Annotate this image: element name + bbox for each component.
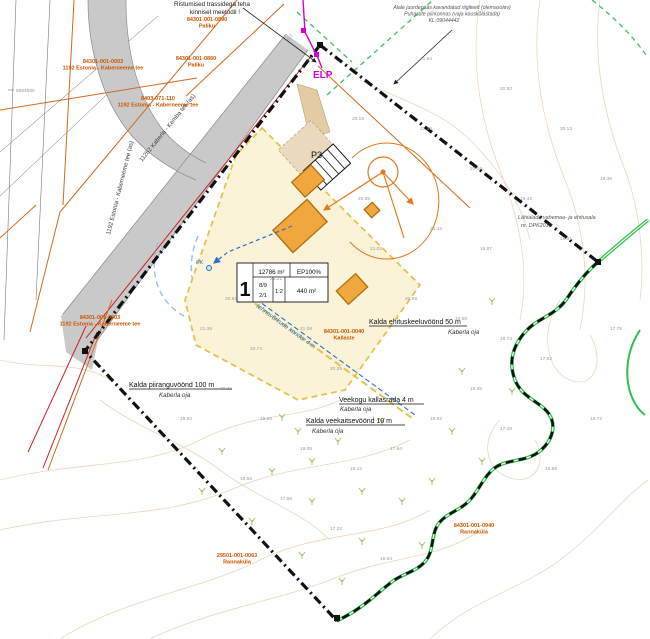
elevation-label: 20.13 xyxy=(560,126,572,132)
elevation-label: 17.75 xyxy=(610,326,622,332)
cadastral-name: 1192 Estonia - Kaberneeme tee xyxy=(63,66,144,72)
elp-label: ELP xyxy=(313,70,333,81)
elevation-label: 18.02 xyxy=(430,416,442,422)
cadastral-code: 29501-001-0063 xyxy=(217,553,257,559)
plot-table: 1 12786 m² EP100% 8/9 2/1 1:2 440 m² xyxy=(237,263,328,302)
cadastral-code: 84301-001-0860 xyxy=(176,56,216,62)
plot-intensity: EP100% xyxy=(297,269,322,276)
cadastral-name: Paliku xyxy=(188,63,204,69)
access-note-line3: KL:09044442 xyxy=(429,18,460,24)
cadastral-name: 1192 Estonia - Kaberneeme tee xyxy=(60,322,141,328)
zone-piirang-stream: Kaberla oja xyxy=(159,392,191,399)
elevation-label: 19.87 xyxy=(480,246,492,252)
elevation-label: 17.22 xyxy=(330,526,342,532)
cadastral-name: 1192 Estonia - Kaberneeme tee xyxy=(118,103,199,109)
elevation-label: 21.21 xyxy=(270,276,282,282)
cadastral-code: 84301-001-0003 xyxy=(83,59,123,65)
cadastral-code: 84301-001-0940 xyxy=(454,523,494,529)
elevation-label: 18.91 xyxy=(560,236,572,242)
zone-keeluvoond-stream: Kaberla oja xyxy=(448,329,480,336)
elevation-label: 20.35 xyxy=(330,366,342,372)
access-note-line1: Alale juurdepääs kavandatud riigiteelt (… xyxy=(392,5,511,11)
zone-piirang-label: Kalda piiranguvöönd 100 m xyxy=(129,382,214,389)
elevation-label: 19.42 xyxy=(520,196,532,202)
elevation-label: 17.48 xyxy=(500,426,512,432)
elevation-label: 16.72 xyxy=(590,416,602,422)
zone-kallasrada-label: Veekogu kallasrada 4 m xyxy=(339,397,414,404)
zone-kallasrada-stream: Kaberla oja xyxy=(340,406,372,413)
elevation-label: 16.89 xyxy=(545,466,557,472)
grid-coordinate-label: 6584500 xyxy=(16,88,35,94)
zone-veekaitse-stream: Kaberla oja xyxy=(312,428,344,435)
plot-ratio: 1:2 xyxy=(275,289,283,295)
crossing-note-line2: kinnisel meetodil ! xyxy=(190,9,240,16)
elevation-label: 21.35 xyxy=(420,126,432,132)
plot-building-area: 440 m² xyxy=(297,288,316,295)
elevation-label: 18.74 xyxy=(500,336,512,342)
elevation-label: 17.85 xyxy=(280,496,292,502)
elevation-label: 18.35 xyxy=(470,386,482,392)
elevation-label: 21.64 xyxy=(420,56,432,62)
cadastral-code: 84301-001-0003 xyxy=(80,315,120,321)
cadastral-name: Rannaküla xyxy=(460,530,489,536)
cadastral-name: Paliku xyxy=(199,24,215,30)
elevation-label: 20.06 xyxy=(470,166,482,172)
elevation-label: 17.64 xyxy=(390,446,402,452)
elevation-label: 20.21 xyxy=(220,386,232,392)
elevation-label: 20.18 xyxy=(352,116,364,122)
cadastral-code: 84301-001-0040 xyxy=(324,329,364,335)
p3-label: P3 xyxy=(311,150,322,160)
cadastral-code: 8403-071-110 xyxy=(141,96,175,102)
pk-label: PK xyxy=(196,260,204,266)
elevation-label: 17.92 xyxy=(540,356,552,362)
east-note-line1: Lähialade vahemaa- ja ehitusala xyxy=(518,215,596,221)
plot-area: 12786 m² xyxy=(258,269,284,276)
elevation-label: 19.66 xyxy=(260,416,272,422)
elevation-label: 18.56 xyxy=(240,476,252,482)
elevation-label: 20.66 xyxy=(405,296,417,302)
crossing-note-line1: Ristumised trassidega teha xyxy=(174,1,250,8)
elevation-label: 16.94 xyxy=(380,556,392,562)
zone-keeluvoond-label: Kalda ehituskeeluvöönd 50 m xyxy=(369,319,461,326)
site-plan-map: 1 12786 m² EP100% 8/9 2/1 1:2 440 m² Kal… xyxy=(0,0,650,639)
elevation-label: 21.36 xyxy=(200,326,212,332)
plan-canvas: 1 12786 m² EP100% 8/9 2/1 1:2 440 m² Kal… xyxy=(0,0,650,639)
east-note-line2: nr. DPK2010 xyxy=(521,223,552,229)
cadastral-code: 84301-001-0890 xyxy=(187,17,227,23)
elevation-label: 20.44 xyxy=(430,226,442,232)
elevation-label: 18.12 xyxy=(350,466,362,472)
cadastral-name: Kallaste xyxy=(333,336,354,342)
plot-units: 2/1 xyxy=(259,293,267,299)
plot-number: 1 xyxy=(239,279,250,301)
cadastral-name: Rannaküla xyxy=(223,560,252,566)
elevation-label: 19.92 xyxy=(180,416,192,422)
plot-storeys: 8/9 xyxy=(259,283,267,289)
access-note-line2: Puhastite piirkonnas (vaja kooskõlastada… xyxy=(404,12,500,18)
elevation-label: 19.35 xyxy=(600,176,612,182)
zone-veekaitse-label: Kalda veekaitsevöönd 10 m xyxy=(306,418,392,425)
magenta-utility xyxy=(301,0,322,68)
elevation-label: 20.92 xyxy=(500,86,512,92)
elevation-label: 21.02 xyxy=(370,246,382,252)
elevation-label: 21.08 xyxy=(300,326,312,332)
road-label-branch: 1192 Estonia - Kaberneeme tee (as) xyxy=(106,141,135,236)
elevation-label: 20.74 xyxy=(250,346,262,352)
elevation-label: 20.85 xyxy=(358,196,370,202)
elevation-label: 19.05 xyxy=(300,446,312,452)
elevation-label: 20.92 xyxy=(225,296,237,302)
elevation-label: 19.58 xyxy=(455,316,467,322)
